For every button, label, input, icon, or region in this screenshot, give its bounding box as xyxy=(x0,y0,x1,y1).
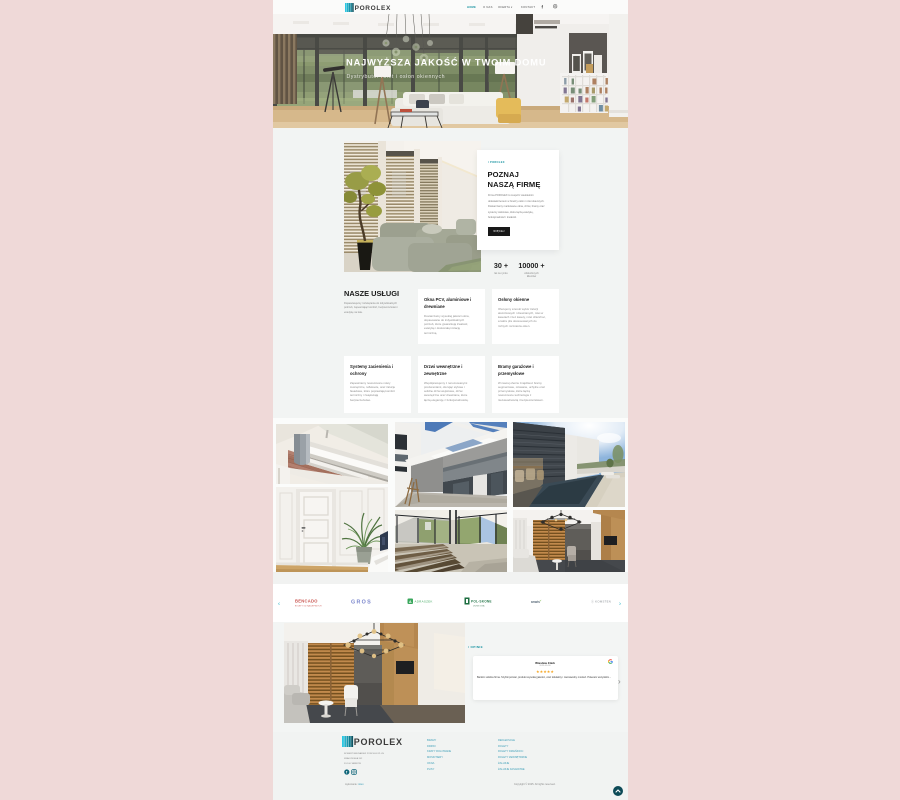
svg-text:✔: ✔ xyxy=(540,600,543,603)
svg-text:ADRASZEK: ADRASZEK xyxy=(415,600,433,604)
svg-text:O NAS: O NAS xyxy=(483,5,493,9)
svg-text:POROLEX: POROLEX xyxy=(355,5,391,12)
svg-text:KONTAKT: KONTAKT xyxy=(521,5,535,9)
svg-text:‹: ‹ xyxy=(278,602,280,608)
svg-text:NAJWYŻSZA JAKOŚĆ W TWOIM DOMU: NAJWYŻSZA JAKOŚĆ W TWOIM DOMU xyxy=(346,57,546,68)
svg-text:BENCADO: BENCADO xyxy=(295,598,318,603)
svg-text:POROLEX: POROLEX xyxy=(354,737,403,747)
svg-text:OFERTA ▾: OFERTA ▾ xyxy=(498,5,513,9)
svg-text:ROLETY OD NAJLEPSZYCH: ROLETY OD NAJLEPSZYCH xyxy=(295,605,322,608)
svg-text:A: A xyxy=(409,600,412,604)
svg-text:HOME: HOME xyxy=(467,5,476,9)
svg-text:POL-SKONE: POL-SKONE xyxy=(471,599,492,603)
svg-text:ⓒ KOMSTEN: ⓒ KOMSTEN xyxy=(591,600,611,604)
svg-text:DRZWI OKNA: DRZWI OKNA xyxy=(473,604,485,607)
svg-text:GROS: GROS xyxy=(351,600,372,606)
svg-text:f: f xyxy=(542,5,544,10)
svg-text:Dystrybutor rolet i osłon okie: Dystrybutor rolet i osłon okiennych xyxy=(347,74,446,80)
svg-text:›: › xyxy=(619,602,621,608)
